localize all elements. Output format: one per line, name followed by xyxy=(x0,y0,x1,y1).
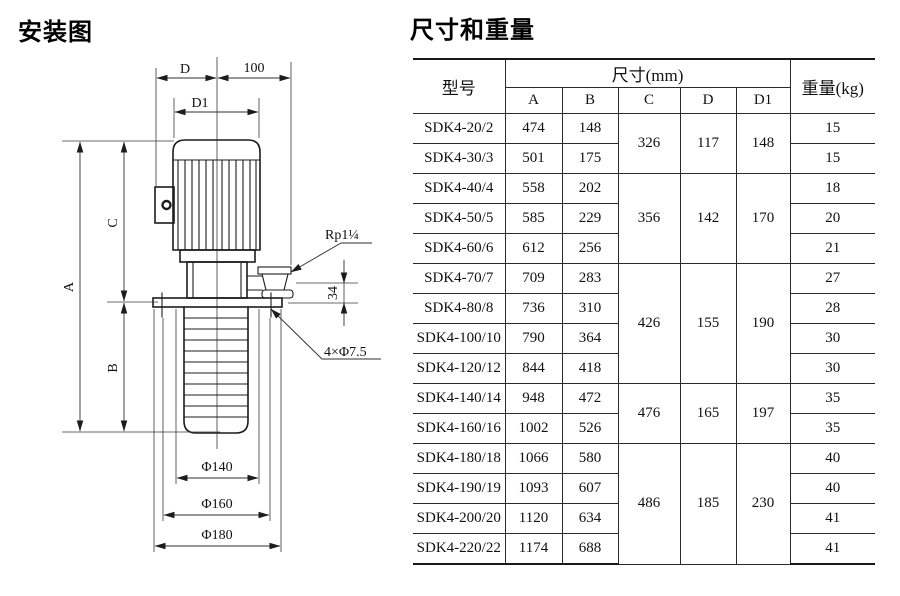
dim-label-34: 34 xyxy=(326,286,341,300)
outlet-thread-leader xyxy=(291,243,372,272)
leader-lines xyxy=(271,243,381,359)
cell-weight: 41 xyxy=(790,504,875,534)
cell-c: 476 xyxy=(618,384,680,444)
cell-weight: 40 xyxy=(790,444,875,474)
cell-model: SDK4-80/8 xyxy=(413,294,505,324)
header-dims-group: 尺寸(mm) xyxy=(505,59,790,88)
dim-label-phi160: Φ160 xyxy=(201,497,232,512)
stage-lines xyxy=(184,318,248,417)
cell-c: 486 xyxy=(618,444,680,565)
cell-a: 1174 xyxy=(505,534,562,565)
outlet-port xyxy=(247,267,293,298)
cell-a: 1066 xyxy=(505,444,562,474)
cell-b: 418 xyxy=(562,354,618,384)
cell-weight: 20 xyxy=(790,204,875,234)
cell-a: 612 xyxy=(505,234,562,264)
dim-label-d1: D1 xyxy=(191,96,208,111)
cell-weight: 30 xyxy=(790,354,875,384)
cell-a: 844 xyxy=(505,354,562,384)
cell-b: 634 xyxy=(562,504,618,534)
dim-label-b: B xyxy=(106,363,121,372)
cell-model: SDK4-120/12 xyxy=(413,354,505,384)
dimensions-table: 型号尺寸(mm)重量(kg)ABCDD1SDK4-20/247414832611… xyxy=(413,58,875,565)
dim-label-phi180: Φ180 xyxy=(201,528,232,543)
cell-b: 229 xyxy=(562,204,618,234)
cell-model: SDK4-70/7 xyxy=(413,264,505,294)
cell-b: 175 xyxy=(562,144,618,174)
header-dim-col: A xyxy=(505,88,562,114)
dim-label-100: 100 xyxy=(244,61,265,76)
cell-a: 585 xyxy=(505,204,562,234)
cell-weight: 28 xyxy=(790,294,875,324)
header-dim-col: D1 xyxy=(736,88,790,114)
cell-d1: 190 xyxy=(736,264,790,384)
cell-a: 709 xyxy=(505,264,562,294)
cell-weight: 15 xyxy=(790,114,875,144)
header-dim-col: D xyxy=(680,88,736,114)
cell-b: 580 xyxy=(562,444,618,474)
cell-model: SDK4-160/16 xyxy=(413,414,505,444)
cell-model: SDK4-60/6 xyxy=(413,234,505,264)
cell-a: 558 xyxy=(505,174,562,204)
cell-d1: 230 xyxy=(736,444,790,565)
cell-b: 310 xyxy=(562,294,618,324)
cell-a: 790 xyxy=(505,324,562,354)
header-weight: 重量(kg) xyxy=(790,59,875,114)
cell-weight: 18 xyxy=(790,174,875,204)
cell-weight: 21 xyxy=(790,234,875,264)
dim-label-phi140: Φ140 xyxy=(201,460,232,475)
cell-model: SDK4-180/18 xyxy=(413,444,505,474)
pump-barrel xyxy=(184,307,248,433)
cell-model: SDK4-20/2 xyxy=(413,114,505,144)
cell-model: SDK4-140/14 xyxy=(413,384,505,414)
header-model: 型号 xyxy=(413,59,505,114)
cell-model: SDK4-100/10 xyxy=(413,324,505,354)
table-row: SDK4-180/18106658048618523040 xyxy=(413,444,875,474)
cell-a: 474 xyxy=(505,114,562,144)
dim-label-d: D xyxy=(180,62,190,77)
cell-a: 736 xyxy=(505,294,562,324)
cell-model: SDK4-200/20 xyxy=(413,504,505,534)
cell-weight: 30 xyxy=(790,324,875,354)
terminal-screw xyxy=(163,201,171,209)
flange-holes-label: 4×Φ7.5 xyxy=(324,345,367,360)
cell-weight: 40 xyxy=(790,474,875,504)
cell-d1: 197 xyxy=(736,384,790,444)
cell-b: 526 xyxy=(562,414,618,444)
dimension-lines xyxy=(80,78,344,546)
motor xyxy=(155,140,260,250)
cell-d1: 148 xyxy=(736,114,790,174)
cell-d: 185 xyxy=(680,444,736,565)
cell-c: 326 xyxy=(618,114,680,174)
cell-b: 364 xyxy=(562,324,618,354)
table-header-row: 型号尺寸(mm)重量(kg) xyxy=(413,59,875,88)
cell-model: SDK4-30/3 xyxy=(413,144,505,174)
table-row: SDK4-140/1494847247616519735 xyxy=(413,384,875,414)
cell-c: 356 xyxy=(618,174,680,264)
cell-d1: 170 xyxy=(736,174,790,264)
cell-b: 283 xyxy=(562,264,618,294)
header-dim-col: C xyxy=(618,88,680,114)
cell-b: 148 xyxy=(562,114,618,144)
table-title: 尺寸和重量 xyxy=(410,10,535,45)
cell-weight: 27 xyxy=(790,264,875,294)
cell-b: 472 xyxy=(562,384,618,414)
cell-b: 256 xyxy=(562,234,618,264)
cell-b: 688 xyxy=(562,534,618,565)
pump-head xyxy=(180,250,255,298)
dim-label-c: C xyxy=(106,218,121,227)
cell-d: 155 xyxy=(680,264,736,384)
installation-diagram: D 100 D1 A C B 34 Rp1¼ 4×Φ7.5 Φ140 Φ160 … xyxy=(0,0,410,596)
cell-model: SDK4-40/4 xyxy=(413,174,505,204)
cell-weight: 41 xyxy=(790,534,875,565)
cell-weight: 15 xyxy=(790,144,875,174)
cell-d: 165 xyxy=(680,384,736,444)
cell-model: SDK4-50/5 xyxy=(413,204,505,234)
cell-weight: 35 xyxy=(790,414,875,444)
cell-a: 1002 xyxy=(505,414,562,444)
table-row: SDK4-20/247414832611714815 xyxy=(413,114,875,144)
cell-a: 948 xyxy=(505,384,562,414)
cell-a: 1093 xyxy=(505,474,562,504)
cell-d: 117 xyxy=(680,114,736,174)
dim-label-a: A xyxy=(62,281,77,292)
cell-model: SDK4-220/22 xyxy=(413,534,505,565)
cell-b: 607 xyxy=(562,474,618,504)
cell-a: 1120 xyxy=(505,504,562,534)
cell-b: 202 xyxy=(562,174,618,204)
cell-a: 501 xyxy=(505,144,562,174)
outlet-thread-label: Rp1¼ xyxy=(325,228,359,243)
cell-d: 142 xyxy=(680,174,736,264)
header-dim-col: B xyxy=(562,88,618,114)
cell-weight: 35 xyxy=(790,384,875,414)
cell-c: 426 xyxy=(618,264,680,384)
cell-model: SDK4-190/19 xyxy=(413,474,505,504)
table-row: SDK4-70/770928342615519027 xyxy=(413,264,875,294)
table-row: SDK4-40/455820235614217018 xyxy=(413,174,875,204)
junction-box xyxy=(155,187,174,223)
